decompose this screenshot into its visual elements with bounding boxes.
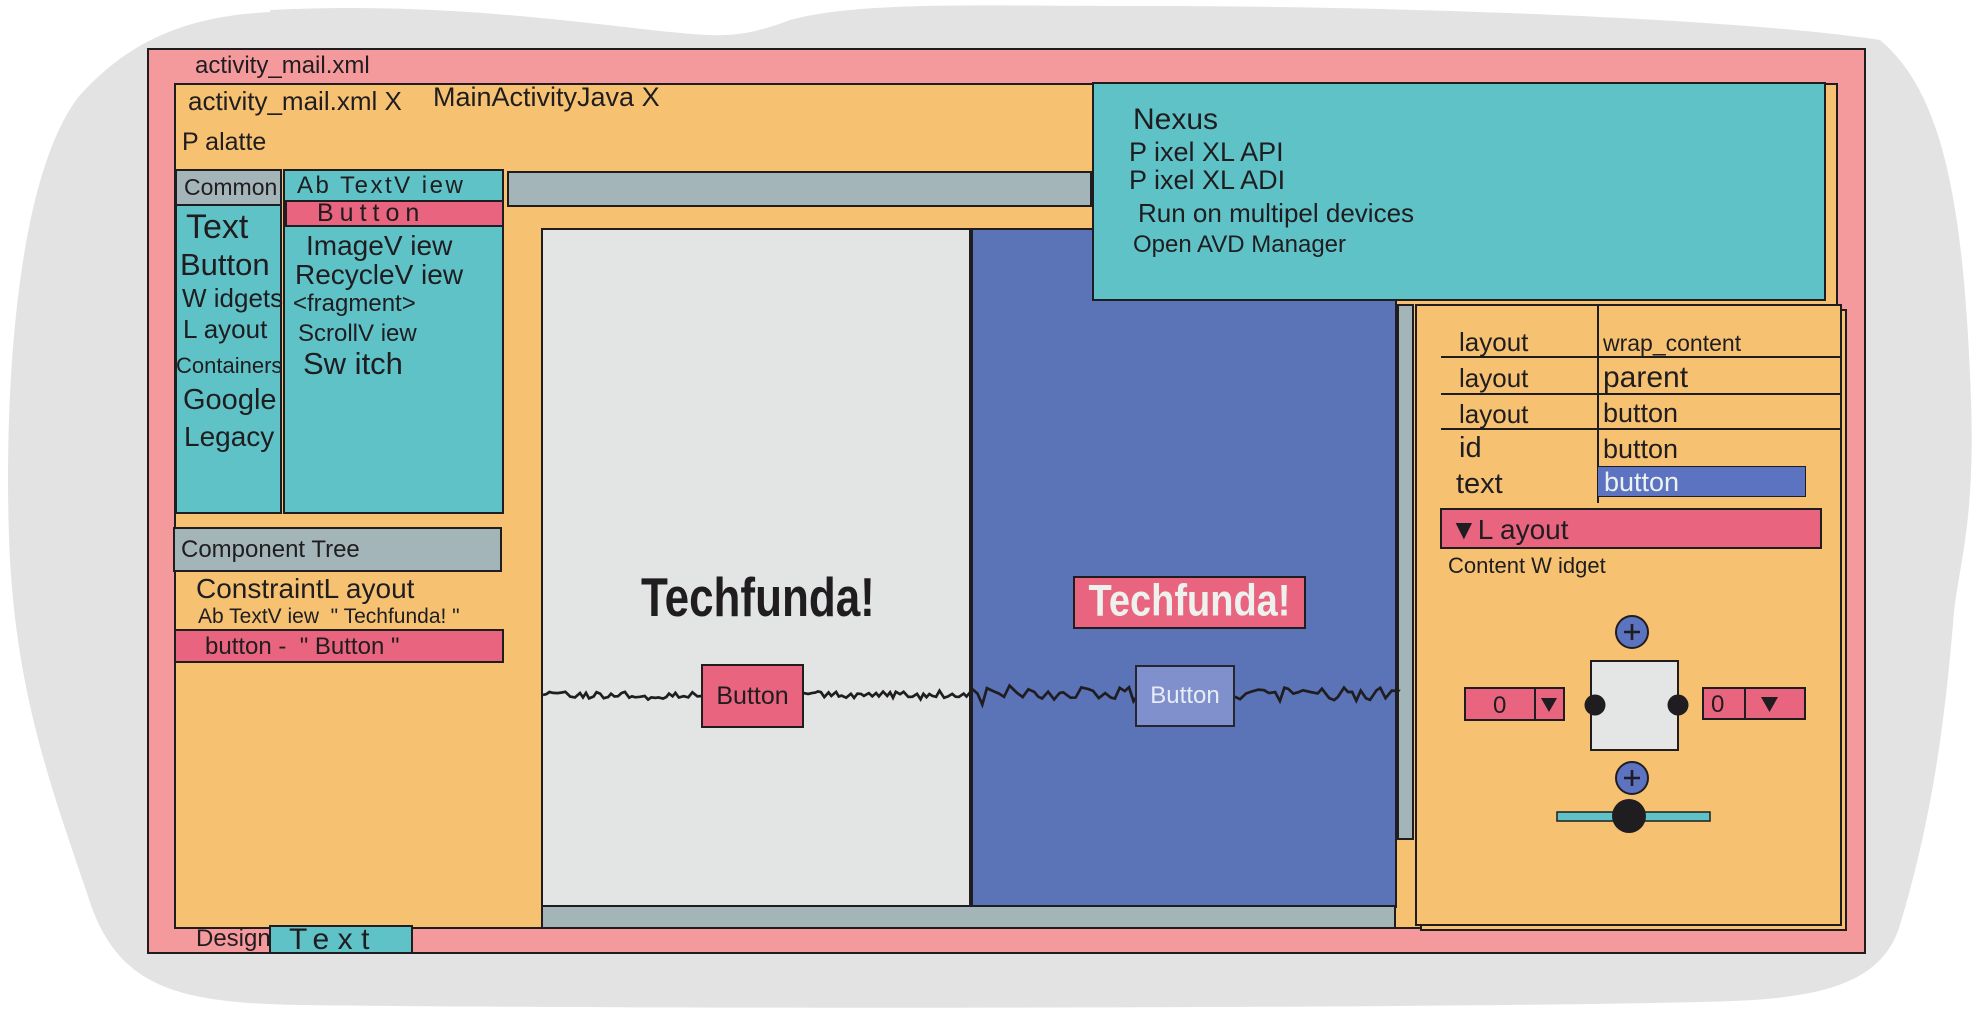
svg-text:0: 0	[1711, 691, 1724, 718]
svg-text:0: 0	[1493, 692, 1506, 719]
